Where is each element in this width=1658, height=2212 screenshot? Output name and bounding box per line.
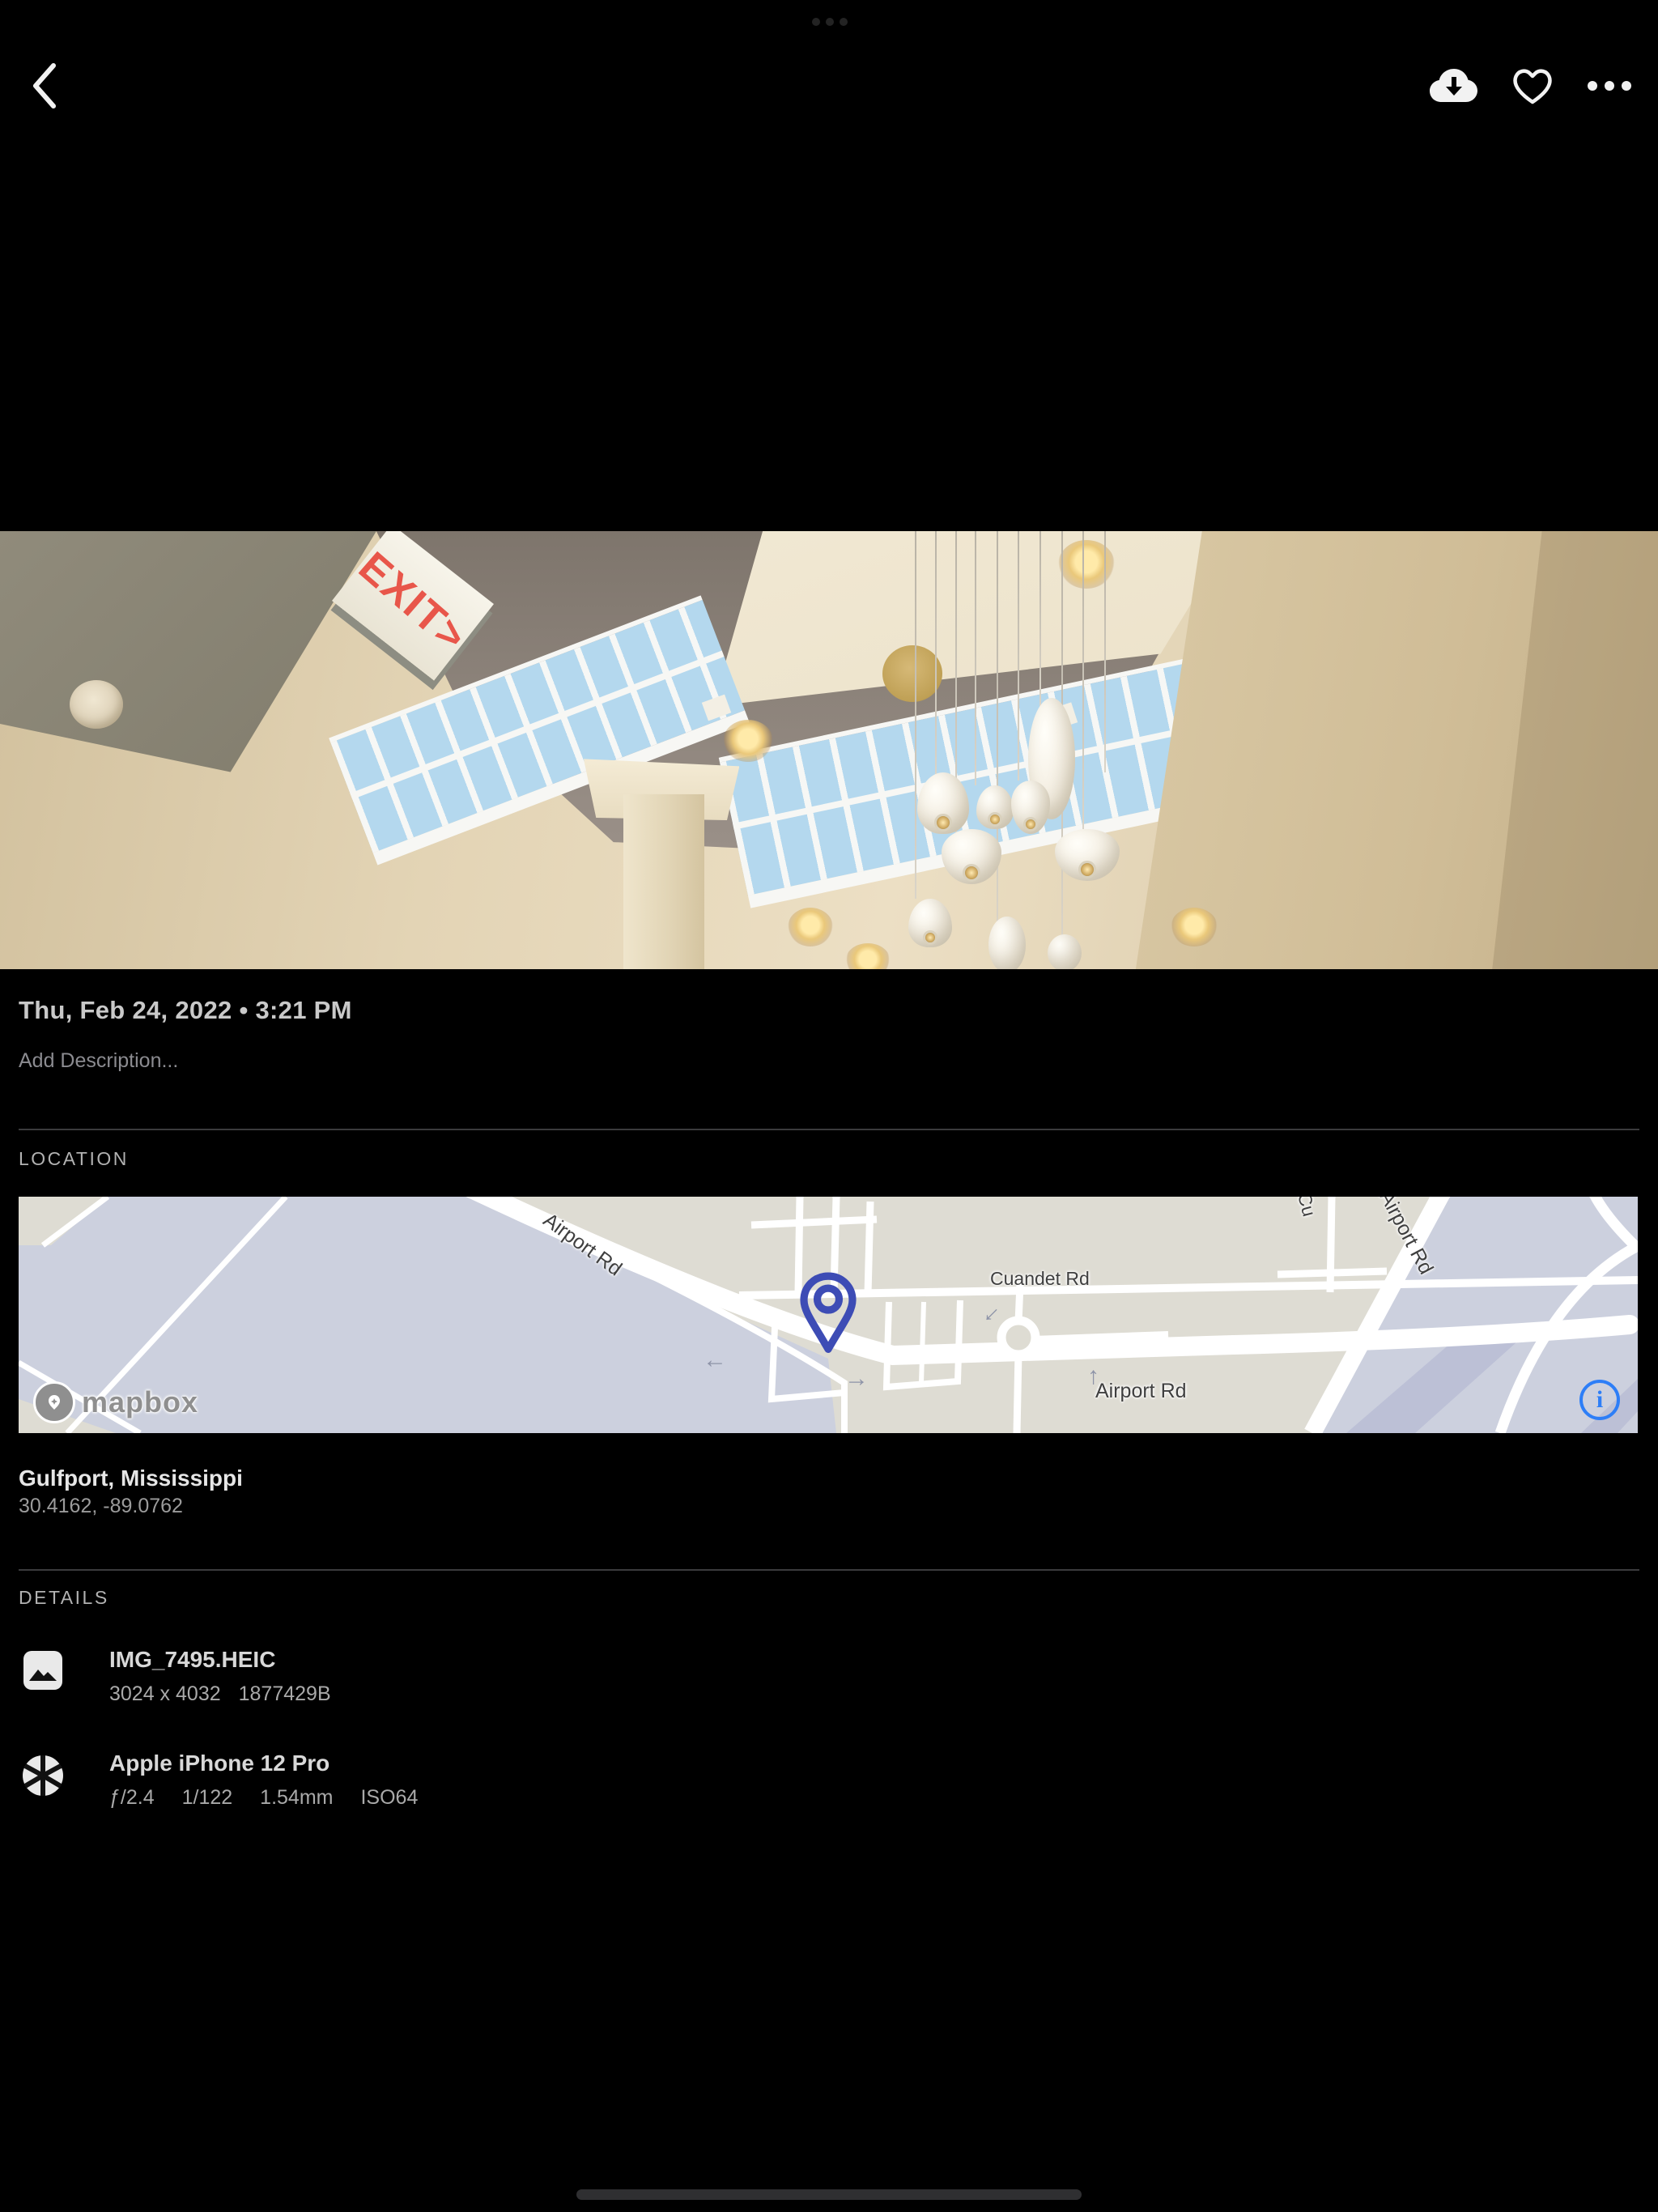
mapbox-logo-icon (33, 1381, 75, 1423)
window-mullion (733, 724, 1205, 830)
photo-ceiling-medallion (882, 645, 942, 702)
favorite-button[interactable] (1503, 57, 1562, 115)
recessed-light (1058, 540, 1115, 589)
file-dimensions: 3024 x 4032 (109, 1682, 221, 1706)
map-road-label: Airport Rd (1095, 1380, 1187, 1403)
location-map[interactable]: Airport Rd Cuandet Rd Airport Rd Airport… (19, 1197, 1638, 1433)
camera-icon (21, 1754, 65, 1802)
camera-iso: ISO64 (360, 1786, 418, 1810)
lamp-wire (915, 531, 916, 899)
pendant-lamp (1055, 829, 1120, 881)
chevron-left-icon (29, 62, 58, 109)
file-name: IMG_7495.HEIC (109, 1647, 275, 1673)
pendant-lamp (1048, 934, 1082, 969)
map-pin-icon (798, 1271, 858, 1355)
camera-shutter: 1/122 (182, 1786, 233, 1810)
location-section-label: LOCATION (19, 1148, 129, 1170)
more-options-button[interactable] (1580, 57, 1639, 115)
camera-exif: ƒ/2.4 1/122 1.54mm ISO64 (109, 1786, 418, 1810)
download-button[interactable] (1425, 57, 1483, 115)
lamp-wire (975, 531, 976, 785)
location-coordinates: 30.4162, -89.0762 (19, 1495, 183, 1518)
map-road-label: Cuandet Rd (990, 1268, 1090, 1290)
pendant-lamp (908, 899, 952, 947)
details-section-label: DETAILS (19, 1587, 109, 1609)
file-type-icon (23, 1650, 63, 1695)
mapbox-wordmark: mapbox (82, 1385, 198, 1419)
lamp-socket (963, 864, 980, 882)
description-field[interactable]: Add Description... (19, 1049, 178, 1073)
file-meta: 3024 x 4032 1877429B (109, 1682, 331, 1706)
lamp-socket (988, 812, 1002, 827)
heart-icon (1511, 66, 1554, 106)
map-oneway-arrow: → (844, 1365, 869, 1393)
back-button[interactable] (15, 57, 73, 115)
map-info-button[interactable]: i (1579, 1380, 1620, 1420)
recessed-light (845, 943, 891, 969)
photo-column (623, 794, 704, 969)
photo-detail-screen: EXIT> Thu, Feb 24, 2022 • 3:21 PM Add De… (0, 0, 1658, 2212)
pendant-lamp (942, 829, 1001, 884)
lamp-wire (935, 531, 937, 776)
lamp-wire (1104, 531, 1106, 772)
lamp-socket (934, 814, 952, 832)
map-oneway-arrow: ← (703, 1346, 727, 1374)
multitask-dot (840, 18, 848, 26)
camera-focal-length: 1.54mm (260, 1786, 333, 1810)
home-indicator[interactable] (576, 2189, 1082, 2200)
lamp-wire (1039, 531, 1041, 706)
divider (19, 1129, 1639, 1130)
lamp-socket (1023, 817, 1038, 832)
pendant-lamp (988, 917, 1026, 969)
lamp-wire (1082, 531, 1084, 829)
recessed-light (788, 908, 833, 946)
multitask-dot (812, 18, 820, 26)
map-oneway-arrow: ↑ (1087, 1363, 1099, 1390)
mapbox-attribution[interactable]: mapbox (33, 1381, 198, 1423)
ellipsis-icon (1587, 80, 1632, 91)
lamp-socket (923, 930, 937, 945)
lamp-socket (1078, 861, 1096, 878)
photo-viewer[interactable]: EXIT> (0, 531, 1658, 969)
cloud-download-icon (1429, 67, 1479, 104)
camera-aperture: ƒ/2.4 (109, 1786, 155, 1810)
divider (19, 1569, 1639, 1571)
location-place: Gulfport, Mississippi (19, 1465, 243, 1491)
recessed-light (723, 720, 773, 762)
info-icon: i (1596, 1386, 1603, 1414)
recessed-light (1171, 908, 1218, 946)
file-size: 1877429B (239, 1682, 331, 1706)
photo-smoke-detector (70, 680, 123, 729)
multitask-dot (826, 18, 834, 26)
lamp-wire (1018, 531, 1019, 781)
lamp-wire (997, 531, 998, 934)
photo-datetime: Thu, Feb 24, 2022 • 3:21 PM (19, 996, 352, 1025)
camera-name: Apple iPhone 12 Pro (109, 1750, 329, 1776)
